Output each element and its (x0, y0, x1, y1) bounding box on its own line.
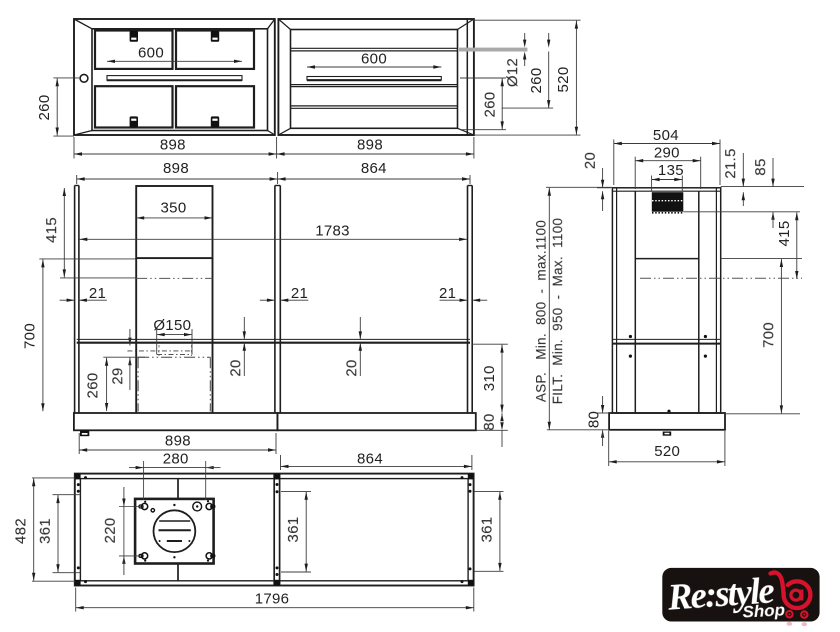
svg-text:600: 600 (361, 50, 387, 67)
svg-text:361: 361 (285, 517, 302, 543)
svg-text:1783: 1783 (315, 222, 350, 239)
svg-text:361: 361 (479, 517, 496, 543)
svg-text:Ø12: Ø12 (504, 58, 521, 87)
svg-text:21.5: 21.5 (722, 148, 739, 178)
svg-text:220: 220 (102, 518, 119, 544)
svg-text:ASP. Min. 800 - max.1100: ASP. Min. 800 - max.1100 (534, 220, 549, 402)
svg-text:898: 898 (160, 136, 186, 153)
svg-text:290: 290 (654, 144, 680, 161)
svg-text:280: 280 (163, 451, 189, 468)
svg-text:898: 898 (357, 136, 383, 153)
svg-text:898: 898 (163, 160, 189, 177)
svg-text:20: 20 (227, 359, 244, 376)
svg-text:Shop: Shop (742, 600, 785, 621)
svg-text:864: 864 (361, 160, 387, 177)
svg-text:898: 898 (165, 433, 191, 450)
svg-text:260: 260 (36, 95, 53, 121)
svg-text:520: 520 (555, 67, 572, 93)
svg-text:20: 20 (582, 152, 599, 169)
svg-text:80: 80 (481, 413, 498, 430)
svg-text:20: 20 (343, 359, 360, 376)
svg-text:350: 350 (161, 199, 187, 216)
svg-text:260: 260 (84, 373, 101, 399)
svg-text:361: 361 (37, 518, 54, 544)
svg-text:1796: 1796 (255, 591, 290, 608)
svg-text:310: 310 (481, 365, 498, 391)
svg-text:600: 600 (138, 45, 164, 62)
svg-text:415: 415 (43, 217, 60, 243)
svg-text:260: 260 (482, 92, 499, 118)
svg-text:21: 21 (89, 285, 106, 302)
svg-text:29: 29 (109, 367, 126, 384)
svg-text:FILT. Min. 950 - Max. 110: FILT. Min. 950 - Max. 1100 (550, 218, 565, 405)
svg-text:80: 80 (586, 411, 603, 428)
svg-text:21: 21 (439, 285, 456, 302)
svg-text:85: 85 (752, 158, 769, 175)
svg-text:864: 864 (357, 451, 383, 468)
svg-text:700: 700 (22, 323, 39, 349)
svg-text:Ø150: Ø150 (153, 317, 191, 334)
svg-text:520: 520 (654, 443, 680, 460)
svg-text:21: 21 (291, 285, 308, 302)
svg-text:415: 415 (776, 221, 793, 247)
svg-text:260: 260 (528, 68, 545, 94)
svg-text:504: 504 (653, 127, 679, 144)
svg-text:482: 482 (12, 518, 29, 544)
svg-text:135: 135 (658, 162, 684, 179)
svg-text:700: 700 (760, 322, 777, 348)
